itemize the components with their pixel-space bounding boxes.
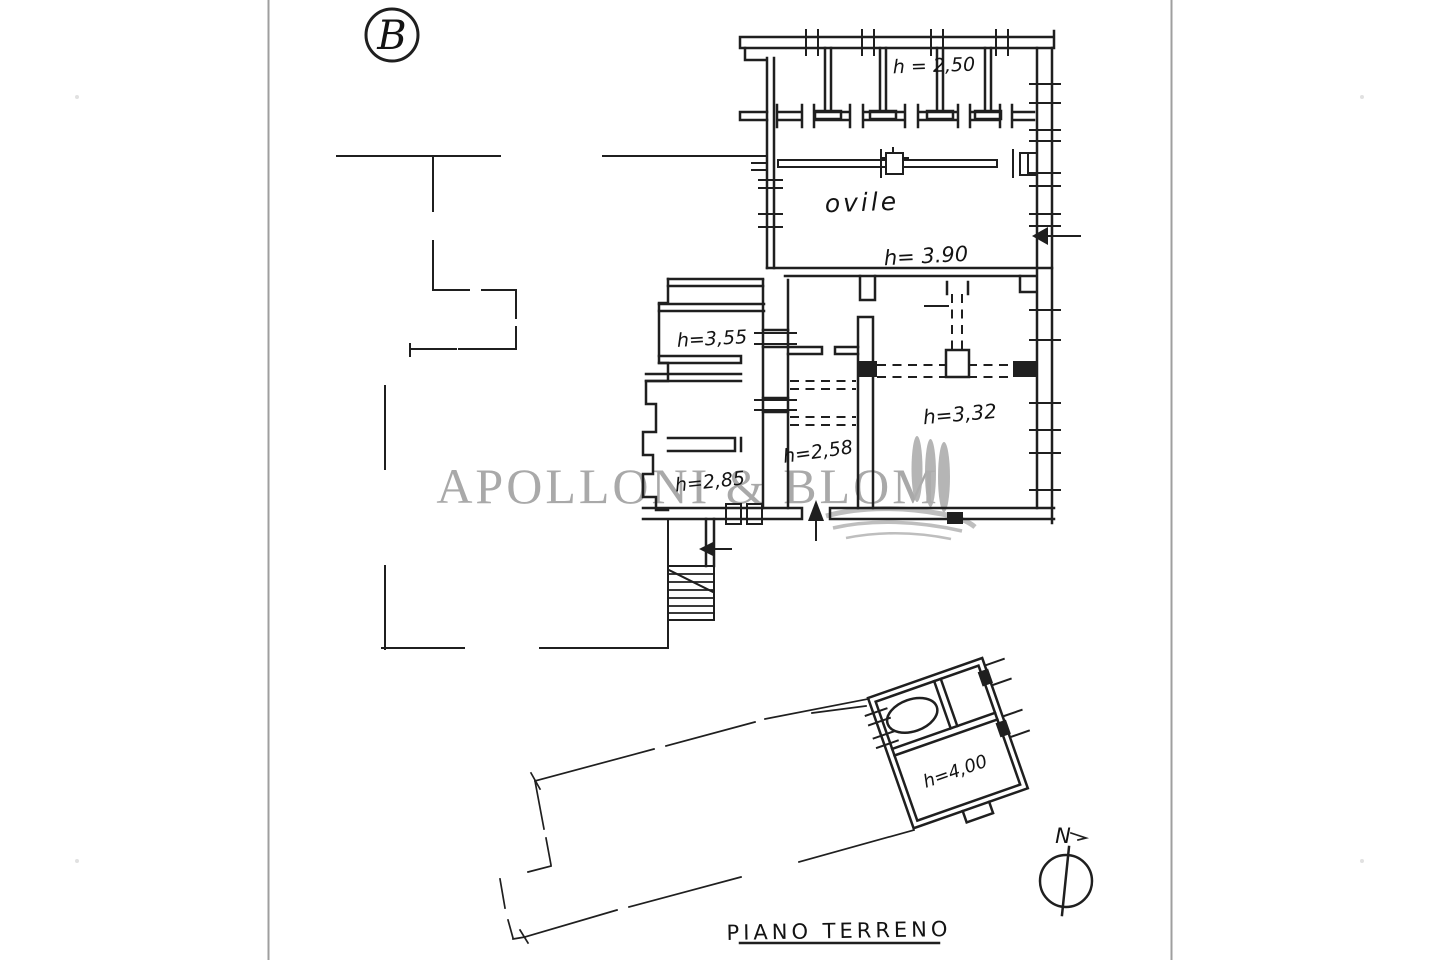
plan-title-block: PIANO TERRENO: [726, 917, 951, 945]
scanned-floor-plan-sheet: APOLLONI & BLOM B: [0, 0, 1440, 960]
dashed-partition: [858, 282, 1036, 377]
plan-title: PIANO TERRENO: [726, 917, 951, 945]
annex-building: h=4,00: [860, 651, 1050, 842]
north-label: N: [1055, 824, 1071, 848]
stall-partitions: [740, 48, 1034, 127]
sheet-letter-badge: B: [366, 9, 418, 61]
stall-height-label: h = 2,50: [892, 54, 975, 79]
feeding-trough: [778, 148, 1036, 177]
ovile-height-label: h= 3.90: [883, 242, 968, 270]
annex-window-marks: [976, 659, 1028, 740]
annex-walls: [860, 658, 1031, 842]
external-stair: [668, 519, 731, 620]
door-mark: [947, 512, 963, 524]
corridor-dashed-lines: [790, 381, 856, 425]
ovile-entrance-arrow: [1032, 227, 1080, 245]
north-compass-icon: N: [1040, 824, 1092, 915]
ovile-room-label: ovile: [824, 187, 899, 219]
floor-plan-canvas: APOLLONI & BLOM B: [0, 0, 1440, 960]
annex-height-label: h=4,00: [920, 751, 990, 793]
room-355-height-label: h=3,55: [676, 326, 747, 352]
long-annex-outline: [500, 699, 914, 943]
cypress-trees-icon: [912, 436, 951, 512]
room-332-height-label: h=3,32: [922, 399, 998, 429]
sheet-letter: B: [376, 13, 406, 59]
courtyard-boundary-walls: [337, 156, 767, 649]
